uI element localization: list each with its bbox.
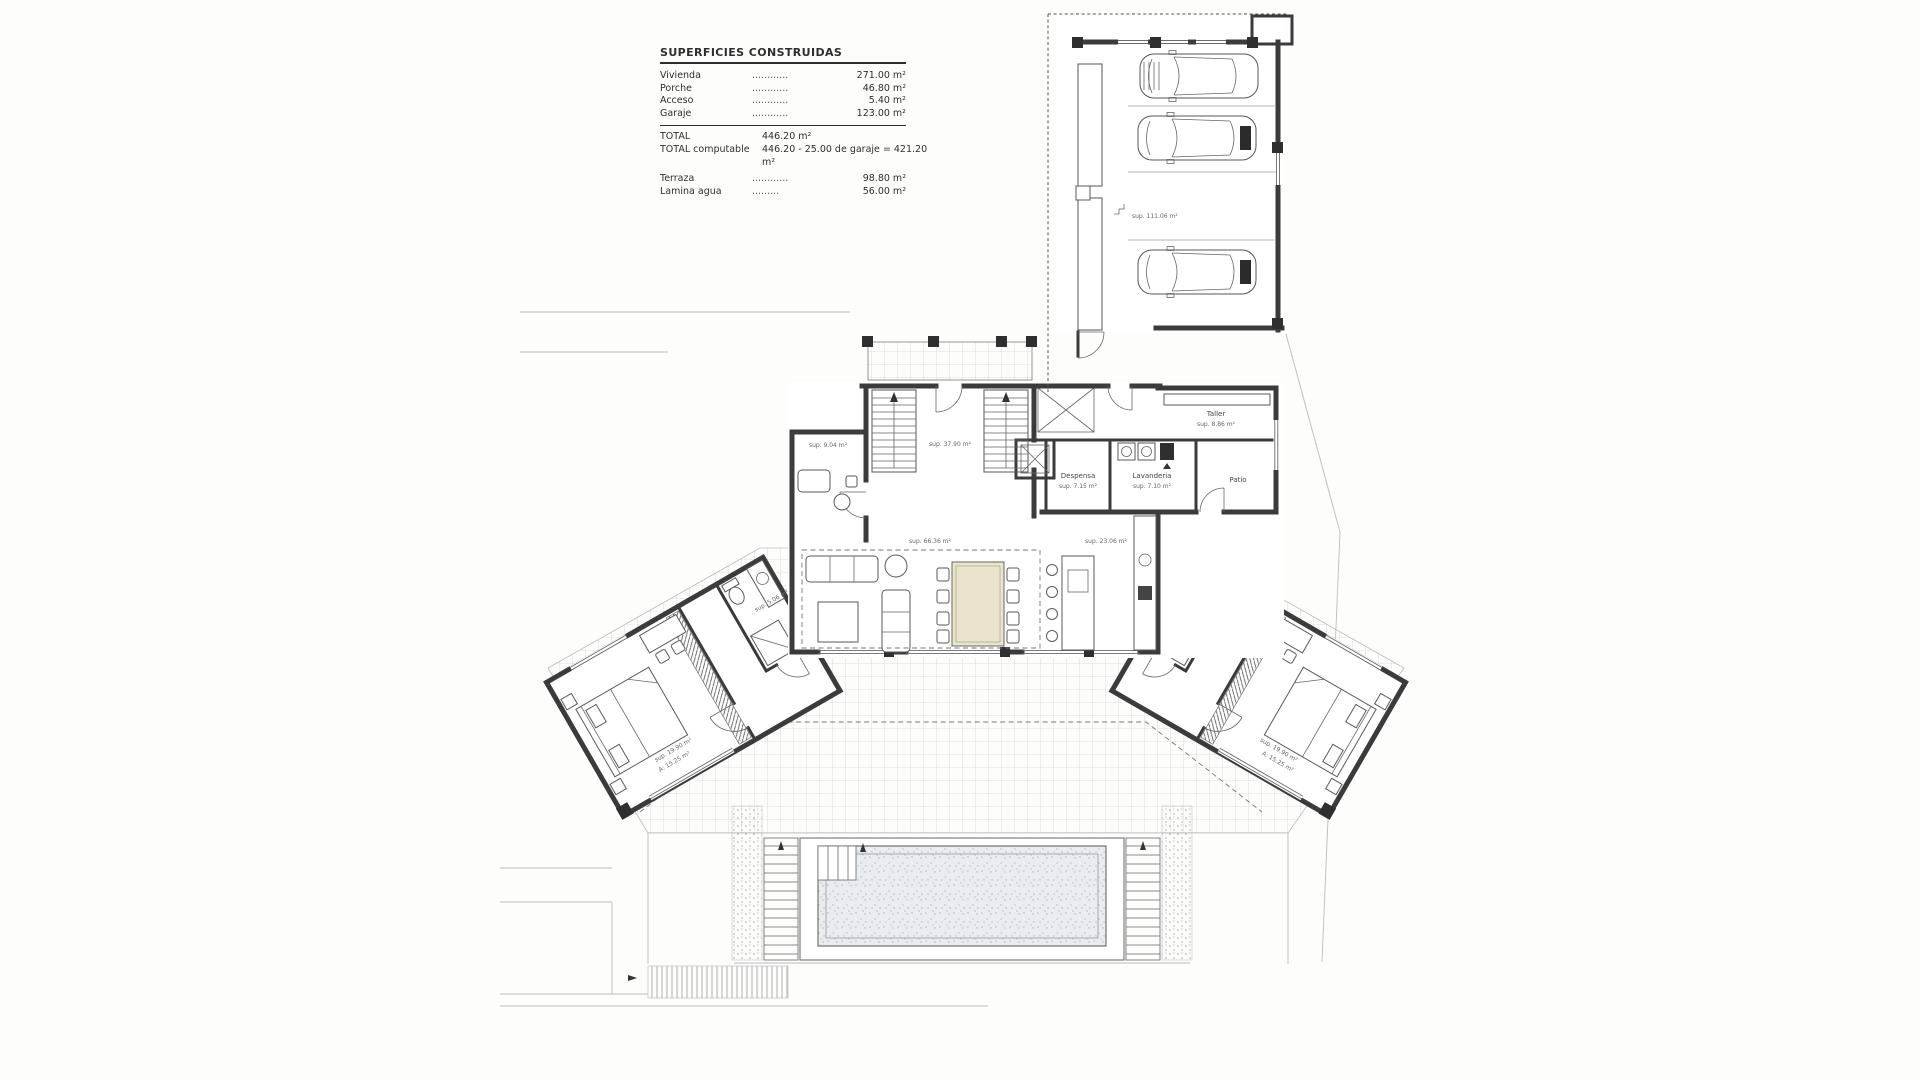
- legend-row: Vivienda ............ 271.00 m²: [660, 70, 906, 83]
- taller-area-label: sup. 8.86 m²: [1197, 421, 1236, 428]
- legend-row: Acceso ............ 5.40 m²: [660, 95, 906, 108]
- floorplan-drawing: sup. 19.90 m² A: 15.25 m² sup. 5.06 m² s…: [0, 0, 1920, 1080]
- gravel-strip-left: [732, 806, 762, 960]
- study-area-label: sup. 9.04 m²: [809, 442, 848, 449]
- entrance-porch: [862, 336, 1037, 380]
- garage-area-label: sup. 111.06 m²: [1132, 213, 1178, 220]
- garage-wing: sup. 111.06 m²: [1048, 14, 1292, 392]
- sofa-2: [882, 590, 910, 652]
- laundry-area-label: sup. 7.10 m²: [1133, 483, 1172, 490]
- pool-water: [818, 846, 1106, 946]
- hall-area-label: sup. 37.90 m²: [929, 441, 971, 448]
- laundry-label: Lavanderia: [1133, 472, 1172, 480]
- areas-legend: SUPERFICIES CONSTRUIDAS Vivienda .......…: [660, 46, 928, 198]
- taller-label: Taller: [1206, 410, 1226, 418]
- legend-total-row: TOTAL 446.20 m²: [660, 130, 928, 143]
- workbench: [1164, 394, 1270, 405]
- legend-title: SUPERFICIES CONSTRUIDAS: [660, 46, 906, 64]
- patio-label: Patio: [1229, 476, 1246, 484]
- garage-door-arc: [1078, 332, 1104, 358]
- pool-stairs-right: [1126, 838, 1160, 960]
- pool-stairs-left: [764, 838, 798, 960]
- legend-row: Lamina agua ......... 56.00 m²: [660, 186, 906, 199]
- house-core: sup. 37.90 m² sup. 9.04 m² sup. 66.36 m²…: [788, 336, 1284, 658]
- side-table: [885, 555, 907, 577]
- slope-arrow-icon: [628, 975, 637, 981]
- living-room-furniture: [806, 555, 910, 652]
- legend-row: Garaje ............ 123.00 m²: [660, 108, 906, 121]
- pantry-label: Despensa: [1061, 472, 1095, 480]
- lower-steps-strip: [648, 966, 788, 998]
- legend-computable-row: TOTAL computable 446.20 - 25.00 de garaj…: [660, 143, 928, 169]
- kitchen-area-label: sup. 23.06 m²: [1085, 538, 1127, 545]
- legend-row: Terraza ............ 98.80 m²: [660, 173, 906, 186]
- pool-area: [628, 806, 1192, 998]
- sofa: [806, 556, 878, 582]
- legend-divider: [660, 125, 906, 126]
- gravel-strip-right: [1162, 806, 1192, 960]
- kitchen-counter: [1134, 516, 1156, 650]
- floorplan-sheet: sup. 19.90 m² A: 15.25 m² sup. 5.06 m² s…: [0, 0, 1920, 1080]
- coffee-table: [818, 602, 858, 642]
- legend-row: Porche ............ 46.80 m²: [660, 83, 906, 96]
- living-area-label: sup. 66.36 m²: [909, 538, 951, 545]
- cooktop: [1138, 586, 1152, 600]
- dining-table: [952, 562, 1004, 646]
- pantry-area-label: sup. 7.15 m²: [1059, 483, 1098, 490]
